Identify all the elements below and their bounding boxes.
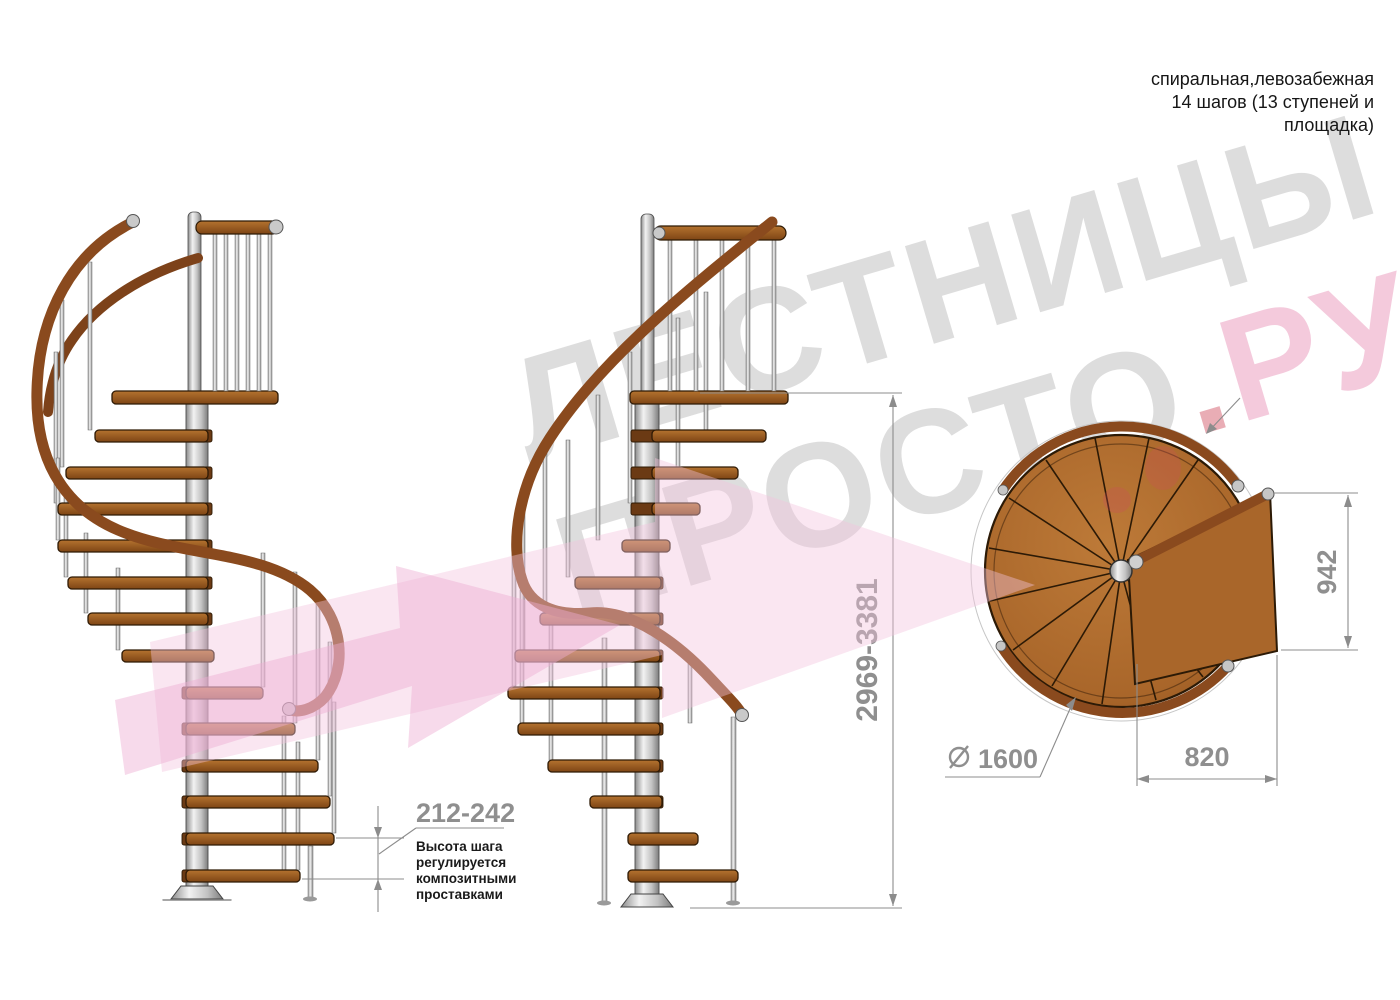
handrail-end-cap <box>283 703 296 716</box>
pole-base-flange <box>171 886 223 899</box>
handrail-end-cap <box>127 215 140 228</box>
header-note: спиральная,левозабежная 14 шагов (13 сту… <box>1151 68 1374 137</box>
center-pole-top-post <box>188 212 201 395</box>
arrow-up-icon <box>374 879 382 890</box>
balusters-front <box>512 292 736 902</box>
diameter-value: 1600 <box>978 744 1038 774</box>
top-platform <box>112 391 278 404</box>
handrail-end-cap <box>1262 488 1274 500</box>
side-view-front <box>508 214 788 907</box>
arrow-right-icon <box>1265 775 1277 783</box>
handrail-end-cap <box>269 220 283 234</box>
center-pole-top-post <box>641 214 654 395</box>
platform-balustrade <box>196 220 283 391</box>
baluster-foot <box>597 901 611 906</box>
plan-hub-ball <box>1129 555 1143 569</box>
center-pole <box>186 391 208 890</box>
landing-width-value: 820 <box>1184 742 1229 772</box>
note-line: Высота шага <box>416 839 503 854</box>
note-line: проставками <box>416 887 503 902</box>
handrail-end-cap <box>1232 480 1244 492</box>
note-line: композитными <box>416 871 516 886</box>
watermark-artifact <box>1103 487 1131 513</box>
technical-drawing-page: ЛЕСТНИЦЫПРОСТО.РУ <box>0 0 1400 1000</box>
arrow-down-icon <box>1344 636 1352 648</box>
side-view-left <box>37 212 339 902</box>
note-line: регулируется <box>416 855 506 870</box>
arrow-left-icon <box>1137 775 1149 783</box>
step-height-value: 212-242 <box>416 798 515 828</box>
pole-base-flange <box>621 894 673 907</box>
arrow-up-icon <box>889 395 897 407</box>
baluster-foot <box>303 897 317 902</box>
handrail-fitting <box>653 227 665 239</box>
arrow-up-icon <box>1344 495 1352 507</box>
baluster-foot <box>726 901 740 906</box>
handrail-end-cap <box>1222 660 1234 672</box>
header-line: площадка) <box>1151 114 1374 137</box>
header-line: 14 шагов (13 ступеней и <box>1151 91 1374 114</box>
plan-view <box>971 421 1277 721</box>
staircase-drawing-canvas: 2969-3381 212-242 942 820 1600 Высота ша… <box>0 0 1400 1000</box>
landing-depth-value: 942 <box>1312 549 1342 594</box>
header-line: спиральная,левозабежная <box>1151 68 1374 91</box>
arrow-down-icon <box>374 827 382 838</box>
handrail-joint <box>996 641 1006 651</box>
arrow-down-icon <box>889 894 897 906</box>
total-height-value: 2969-3381 <box>851 578 884 721</box>
watermark-artifact <box>1145 446 1181 490</box>
step-height-note: Высота шага регулируется композитными пр… <box>416 839 516 902</box>
handrail-joint <box>998 485 1008 495</box>
handrail-end-cap <box>736 709 749 722</box>
platform-handrail <box>196 221 278 234</box>
